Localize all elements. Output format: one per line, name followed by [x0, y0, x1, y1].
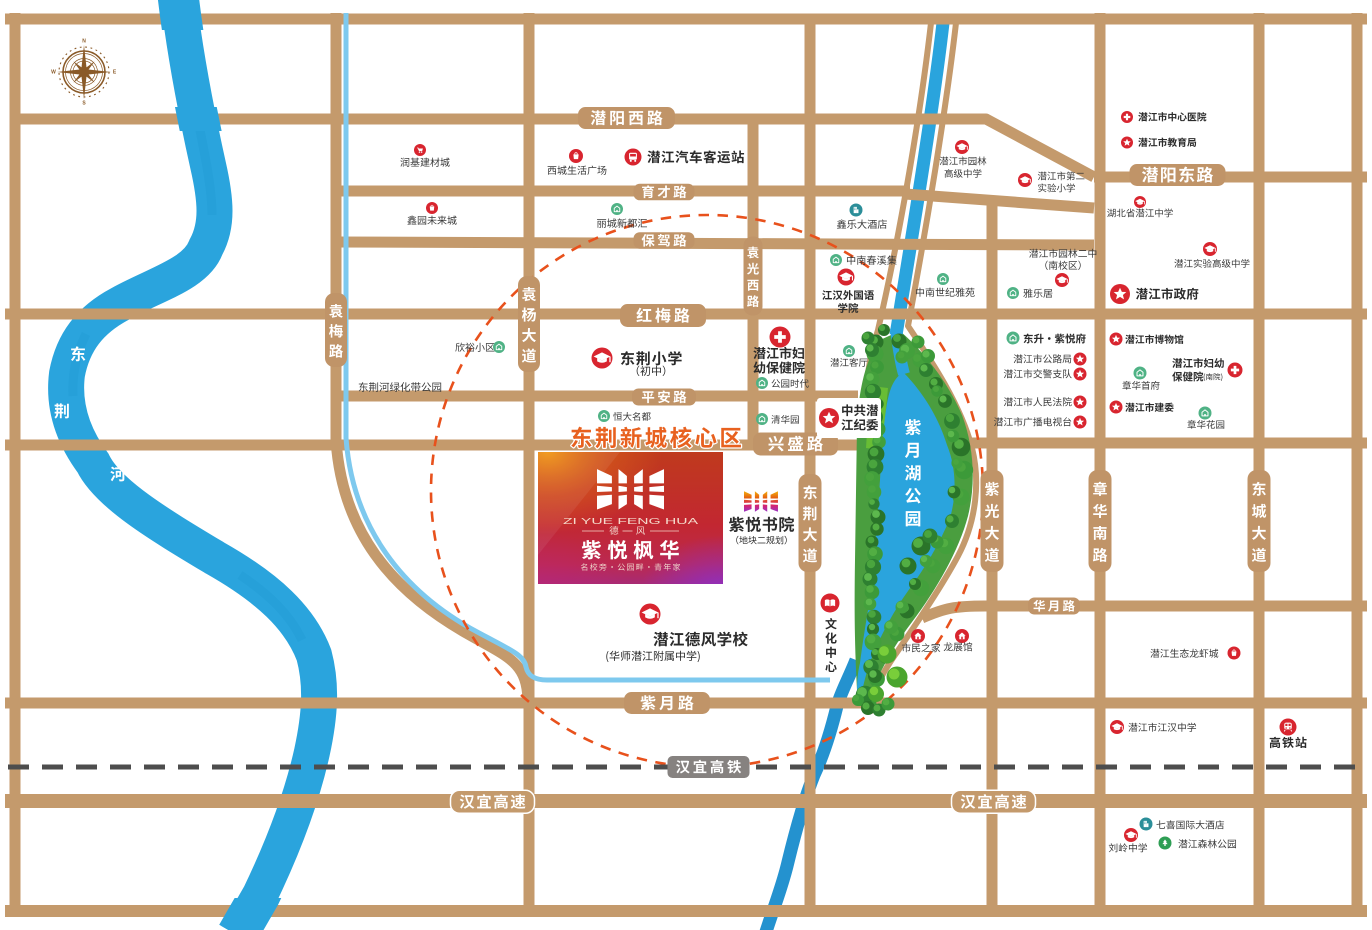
svg-text:W: W — [51, 70, 56, 76]
svg-text:ZI YUE FENG HUA: ZI YUE FENG HUA — [563, 517, 699, 526]
svg-text:N: N — [82, 39, 86, 45]
